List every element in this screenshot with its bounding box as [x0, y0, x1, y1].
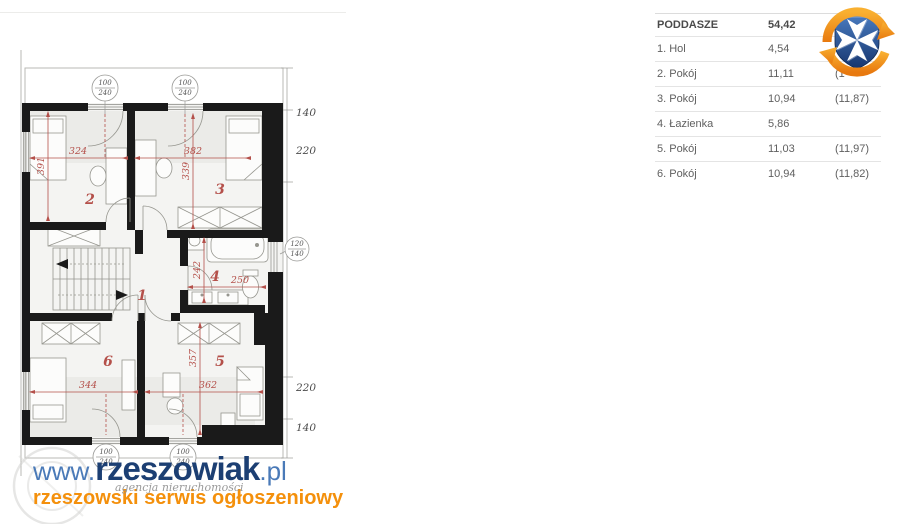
desk-room3 [135, 140, 156, 196]
dim-357: 357 [188, 348, 199, 367]
floor-plan: 140 220 220 140 [10, 42, 330, 482]
url-prefix: www. [33, 456, 95, 486]
room-area: 11,03 [768, 143, 835, 155]
room-area: 5,86 [768, 118, 835, 130]
svg-text:120: 120 [290, 240, 304, 248]
room-area: 4,54 [768, 43, 835, 55]
room-area: 10,94 [768, 93, 835, 105]
agency-subtitle: agencja nieruchomości [115, 481, 244, 494]
chair-room2 [90, 166, 106, 186]
dim-391: 391 [36, 157, 47, 175]
table-row: 4. Łazienka 5,86 [655, 111, 881, 136]
room-label-1: 1 [137, 288, 147, 304]
table-room5 [221, 413, 235, 427]
side-dim-220-bottom: 220 [295, 382, 316, 394]
header-room-name: PODDASZE [657, 19, 768, 31]
room-area-gross: (11,87) [835, 93, 881, 105]
svg-text:100: 100 [98, 79, 112, 87]
svg-text:240: 240 [177, 89, 192, 97]
svg-text:100: 100 [178, 79, 192, 87]
room-area: 11,11 [768, 68, 835, 80]
room-name: 1. Hol [657, 43, 768, 55]
svg-text:140: 140 [290, 250, 304, 258]
svg-text:240: 240 [97, 89, 112, 97]
room-name: 5. Pokój [657, 143, 768, 155]
dim-250: 250 [230, 275, 249, 286]
table-row: 2. Pokój 11,11 (1 [655, 61, 881, 86]
side-dim-220-top: 220 [295, 145, 316, 157]
table-row: 1. Hol 4,54 [655, 36, 881, 61]
dim-382: 382 [184, 146, 202, 157]
dim-362: 362 [199, 380, 217, 391]
desk-room5 [163, 373, 180, 397]
desk-room2 [106, 148, 127, 204]
dim-242: 242 [192, 261, 203, 280]
wardrobe-room6 [42, 323, 100, 344]
side-dim-140-bottom: 140 [296, 422, 316, 434]
wardrobe-room5 [178, 323, 240, 344]
table-row: 6. Pokój 10,94 (11,82) [655, 161, 881, 186]
room-label-6: 6 [103, 354, 113, 370]
header-total-area: 54,42 [768, 19, 835, 31]
room-area-gross: (11,82) [835, 168, 881, 180]
room-name: 4. Łazienka [657, 118, 768, 130]
room-area: 10,94 [768, 168, 835, 180]
door-size-marker: 120 140 [280, 237, 309, 261]
dim-324: 324 [69, 146, 87, 157]
shelf-room6 [122, 360, 135, 410]
wardrobe-room3 [178, 207, 262, 228]
chair-room3 [156, 158, 172, 178]
sink-counter [188, 290, 248, 305]
url-suffix: .pl [259, 456, 286, 486]
room-label-3: 3 [215, 182, 225, 198]
dim-339: 339 [181, 162, 192, 180]
area-table-header: PODDASZE 54,42 [655, 14, 881, 36]
room-name: 2. Pokój [657, 68, 768, 80]
room-label-4: 4 [210, 269, 220, 285]
room-area-gross: (11,97) [835, 143, 881, 155]
room-area-gross: (1 [835, 68, 881, 80]
dim-344: 344 [79, 380, 97, 391]
table-row: 5. Pokój 11,03 (11,97) [655, 136, 881, 161]
room-name: 6. Pokój [657, 168, 768, 180]
table-row: 3. Pokój 10,94 (11,87) [655, 86, 881, 111]
area-table: PODDASZE 54,42 1. Hol 4,54 2. Pokój 11,1… [655, 13, 881, 186]
photo-border [0, 12, 346, 13]
dimension-chain: 140 220 220 140 [281, 68, 316, 458]
side-dim-140-top: 140 [296, 107, 316, 119]
room-label-5: 5 [215, 354, 225, 370]
room-name: 3. Pokój [657, 93, 768, 105]
room-label-2: 2 [84, 192, 95, 208]
